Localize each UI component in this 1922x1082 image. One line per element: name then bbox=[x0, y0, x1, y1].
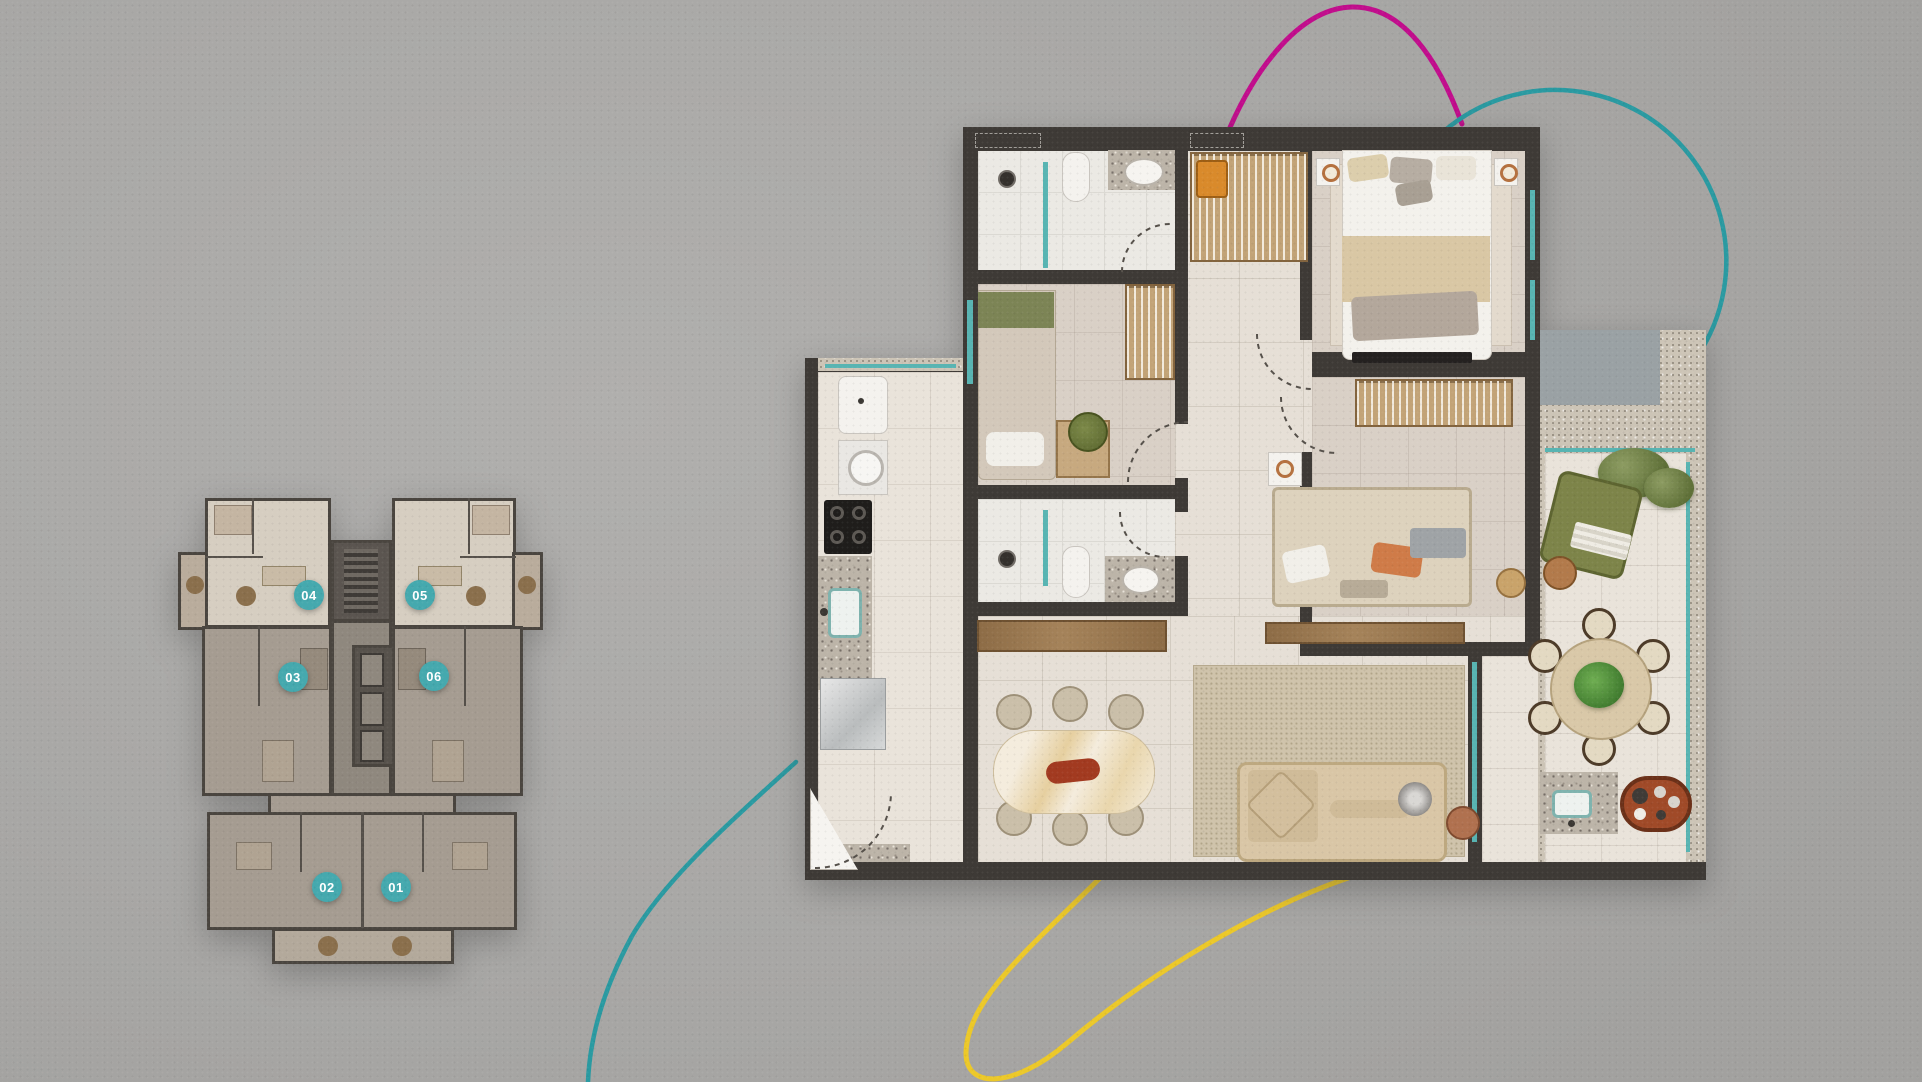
wall-segment bbox=[963, 485, 1188, 499]
pillow bbox=[1340, 580, 1388, 598]
dining-chair bbox=[1052, 810, 1088, 846]
wall-segment bbox=[805, 862, 1706, 880]
burner-icon bbox=[852, 530, 866, 544]
wall-segment bbox=[963, 602, 1175, 616]
pillow bbox=[986, 432, 1044, 466]
burner-icon bbox=[852, 506, 866, 520]
floor-plan-scene: 040503060201 bbox=[0, 0, 1922, 1082]
grill-burner-icon bbox=[1668, 796, 1680, 808]
faucet-icon bbox=[1568, 820, 1575, 827]
wall-segment bbox=[1175, 284, 1188, 424]
bath1-sink-basin bbox=[1124, 158, 1164, 186]
fridge bbox=[820, 678, 886, 750]
grill-burner-icon bbox=[1632, 788, 1648, 804]
master-window-glass bbox=[1530, 280, 1535, 340]
basket bbox=[1196, 160, 1228, 198]
bed-throw bbox=[1351, 291, 1479, 342]
lamp-icon bbox=[1322, 164, 1340, 182]
wall-segment bbox=[963, 270, 1188, 284]
desk-chair bbox=[1068, 412, 1108, 452]
tv-console bbox=[1352, 352, 1472, 363]
bed-throw bbox=[978, 292, 1054, 328]
grill-burner-icon bbox=[1656, 810, 1666, 820]
dining-chair bbox=[996, 694, 1032, 730]
window-projection bbox=[1190, 133, 1244, 148]
washer-door bbox=[848, 450, 884, 486]
burner-icon bbox=[830, 530, 844, 544]
kitchen-sink bbox=[828, 588, 862, 638]
dining-chair bbox=[1052, 686, 1088, 722]
shower-head-icon bbox=[1000, 552, 1014, 566]
wall-segment bbox=[1175, 556, 1188, 616]
toilet bbox=[1062, 152, 1090, 202]
rattan-pouf bbox=[1496, 568, 1526, 598]
wall-segment bbox=[1175, 150, 1188, 270]
bedroom2-wardrobe bbox=[1125, 284, 1175, 380]
bbq-grill bbox=[1620, 776, 1692, 832]
side-table-round bbox=[1446, 806, 1480, 840]
kitchen-window-glass bbox=[825, 364, 956, 368]
wall-segment bbox=[1300, 642, 1525, 656]
pillow bbox=[1436, 156, 1476, 180]
den-console bbox=[1265, 622, 1465, 644]
terrace-walkway bbox=[1482, 656, 1538, 862]
wall-segment bbox=[805, 358, 818, 862]
dining-chair bbox=[1108, 694, 1144, 730]
burner-icon bbox=[830, 506, 844, 520]
bath2-sink-basin bbox=[1122, 566, 1160, 594]
faucet-icon bbox=[858, 398, 864, 404]
laundry-sink bbox=[838, 376, 888, 434]
wall-segment bbox=[1175, 478, 1188, 512]
wall-segment bbox=[963, 127, 1540, 151]
grill-burner-icon bbox=[1634, 808, 1646, 820]
floor-lamp bbox=[1398, 782, 1432, 816]
faucet-icon bbox=[820, 608, 828, 616]
side-stool bbox=[1543, 556, 1577, 590]
blanket bbox=[1410, 528, 1466, 558]
shower-glass bbox=[1043, 162, 1048, 268]
lamp-icon bbox=[1500, 164, 1518, 182]
planter-greenery bbox=[1644, 468, 1694, 508]
terrace-deck bbox=[1538, 330, 1660, 405]
shower-glass bbox=[1043, 510, 1048, 586]
terrace-chair bbox=[1582, 608, 1616, 642]
grill-burner-icon bbox=[1654, 786, 1666, 798]
open-clothes-rack bbox=[1355, 379, 1513, 427]
table-plant bbox=[1574, 662, 1624, 708]
window-projection bbox=[975, 133, 1041, 148]
bar-sink bbox=[1552, 790, 1592, 818]
apartment-floor-plan bbox=[0, 0, 1922, 1082]
shower-head-icon bbox=[1000, 172, 1014, 186]
bedroom2-window-glass bbox=[967, 300, 973, 384]
toilet bbox=[1062, 546, 1090, 598]
lamp-icon bbox=[1276, 460, 1294, 478]
master-window-glass bbox=[1530, 190, 1535, 260]
sideboard bbox=[977, 620, 1167, 652]
